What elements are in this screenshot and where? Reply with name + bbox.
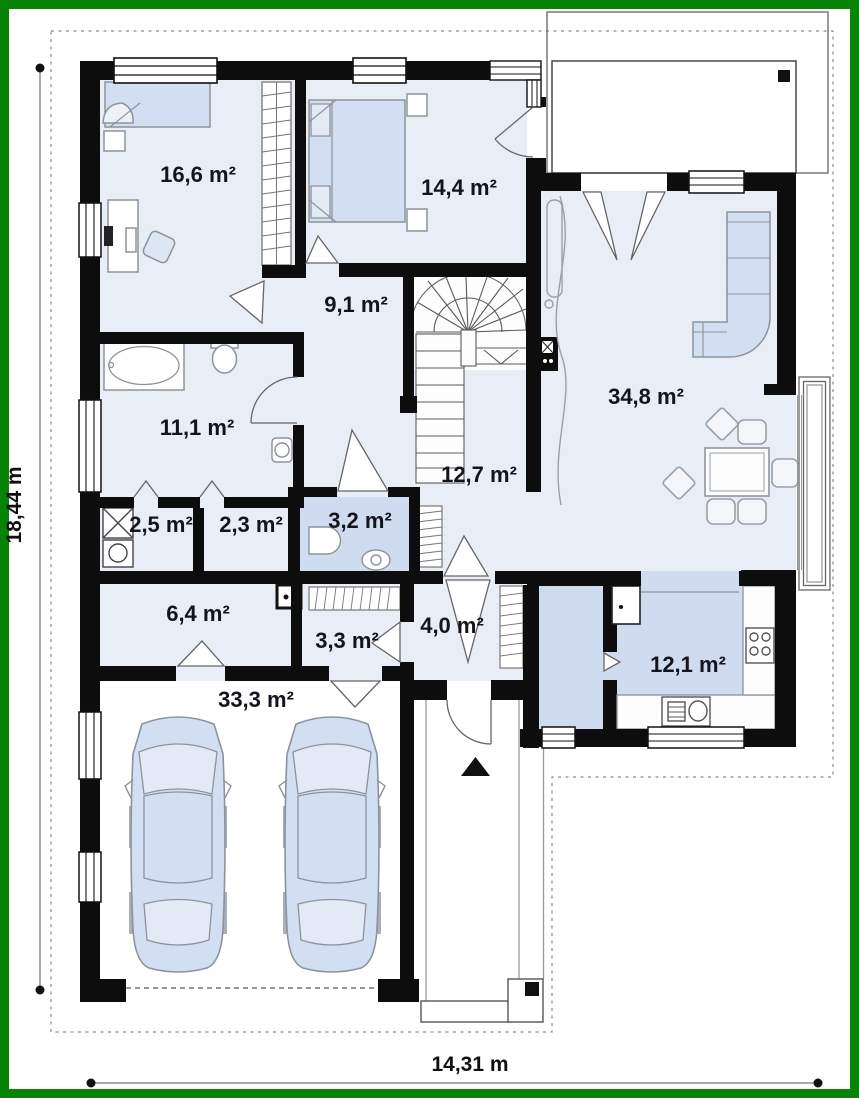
- svg-text:3,3 m²: 3,3 m²: [315, 628, 379, 653]
- svg-text:4,0 m²: 4,0 m²: [420, 613, 484, 638]
- svg-text:12,1 m²: 12,1 m²: [650, 652, 726, 677]
- svg-text:2,3 m²: 2,3 m²: [219, 512, 283, 537]
- svg-text:6,4 m²: 6,4 m²: [166, 601, 230, 626]
- svg-text:14,4 m²: 14,4 m²: [421, 175, 497, 200]
- svg-text:18,44 m: 18,44 m: [3, 466, 26, 543]
- svg-text:14,31 m: 14,31 m: [431, 1053, 508, 1076]
- svg-text:3,2 m²: 3,2 m²: [328, 508, 392, 533]
- svg-text:9,1 m²: 9,1 m²: [324, 292, 388, 317]
- svg-text:12,7 m²: 12,7 m²: [441, 462, 517, 487]
- svg-text:33,3 m²: 33,3 m²: [218, 687, 294, 712]
- svg-text:16,6 m²: 16,6 m²: [160, 162, 236, 187]
- svg-text:2,5 m²: 2,5 m²: [129, 512, 193, 537]
- svg-text:34,8 m²: 34,8 m²: [608, 384, 684, 409]
- svg-text:11,1 m²: 11,1 m²: [160, 415, 235, 440]
